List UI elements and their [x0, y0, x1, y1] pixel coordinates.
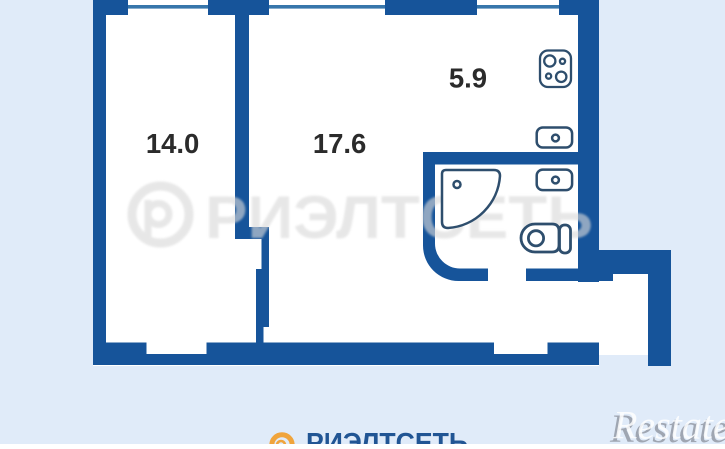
svg-text:Restate: Restate — [612, 403, 725, 445]
svg-text:14.0: 14.0 — [146, 128, 200, 159]
svg-text:РИЭЛТСЕТЬ: РИЭЛТСЕТЬ — [306, 427, 468, 444]
svg-text:5.9: 5.9 — [449, 63, 487, 94]
svg-text:17.6: 17.6 — [313, 128, 367, 159]
